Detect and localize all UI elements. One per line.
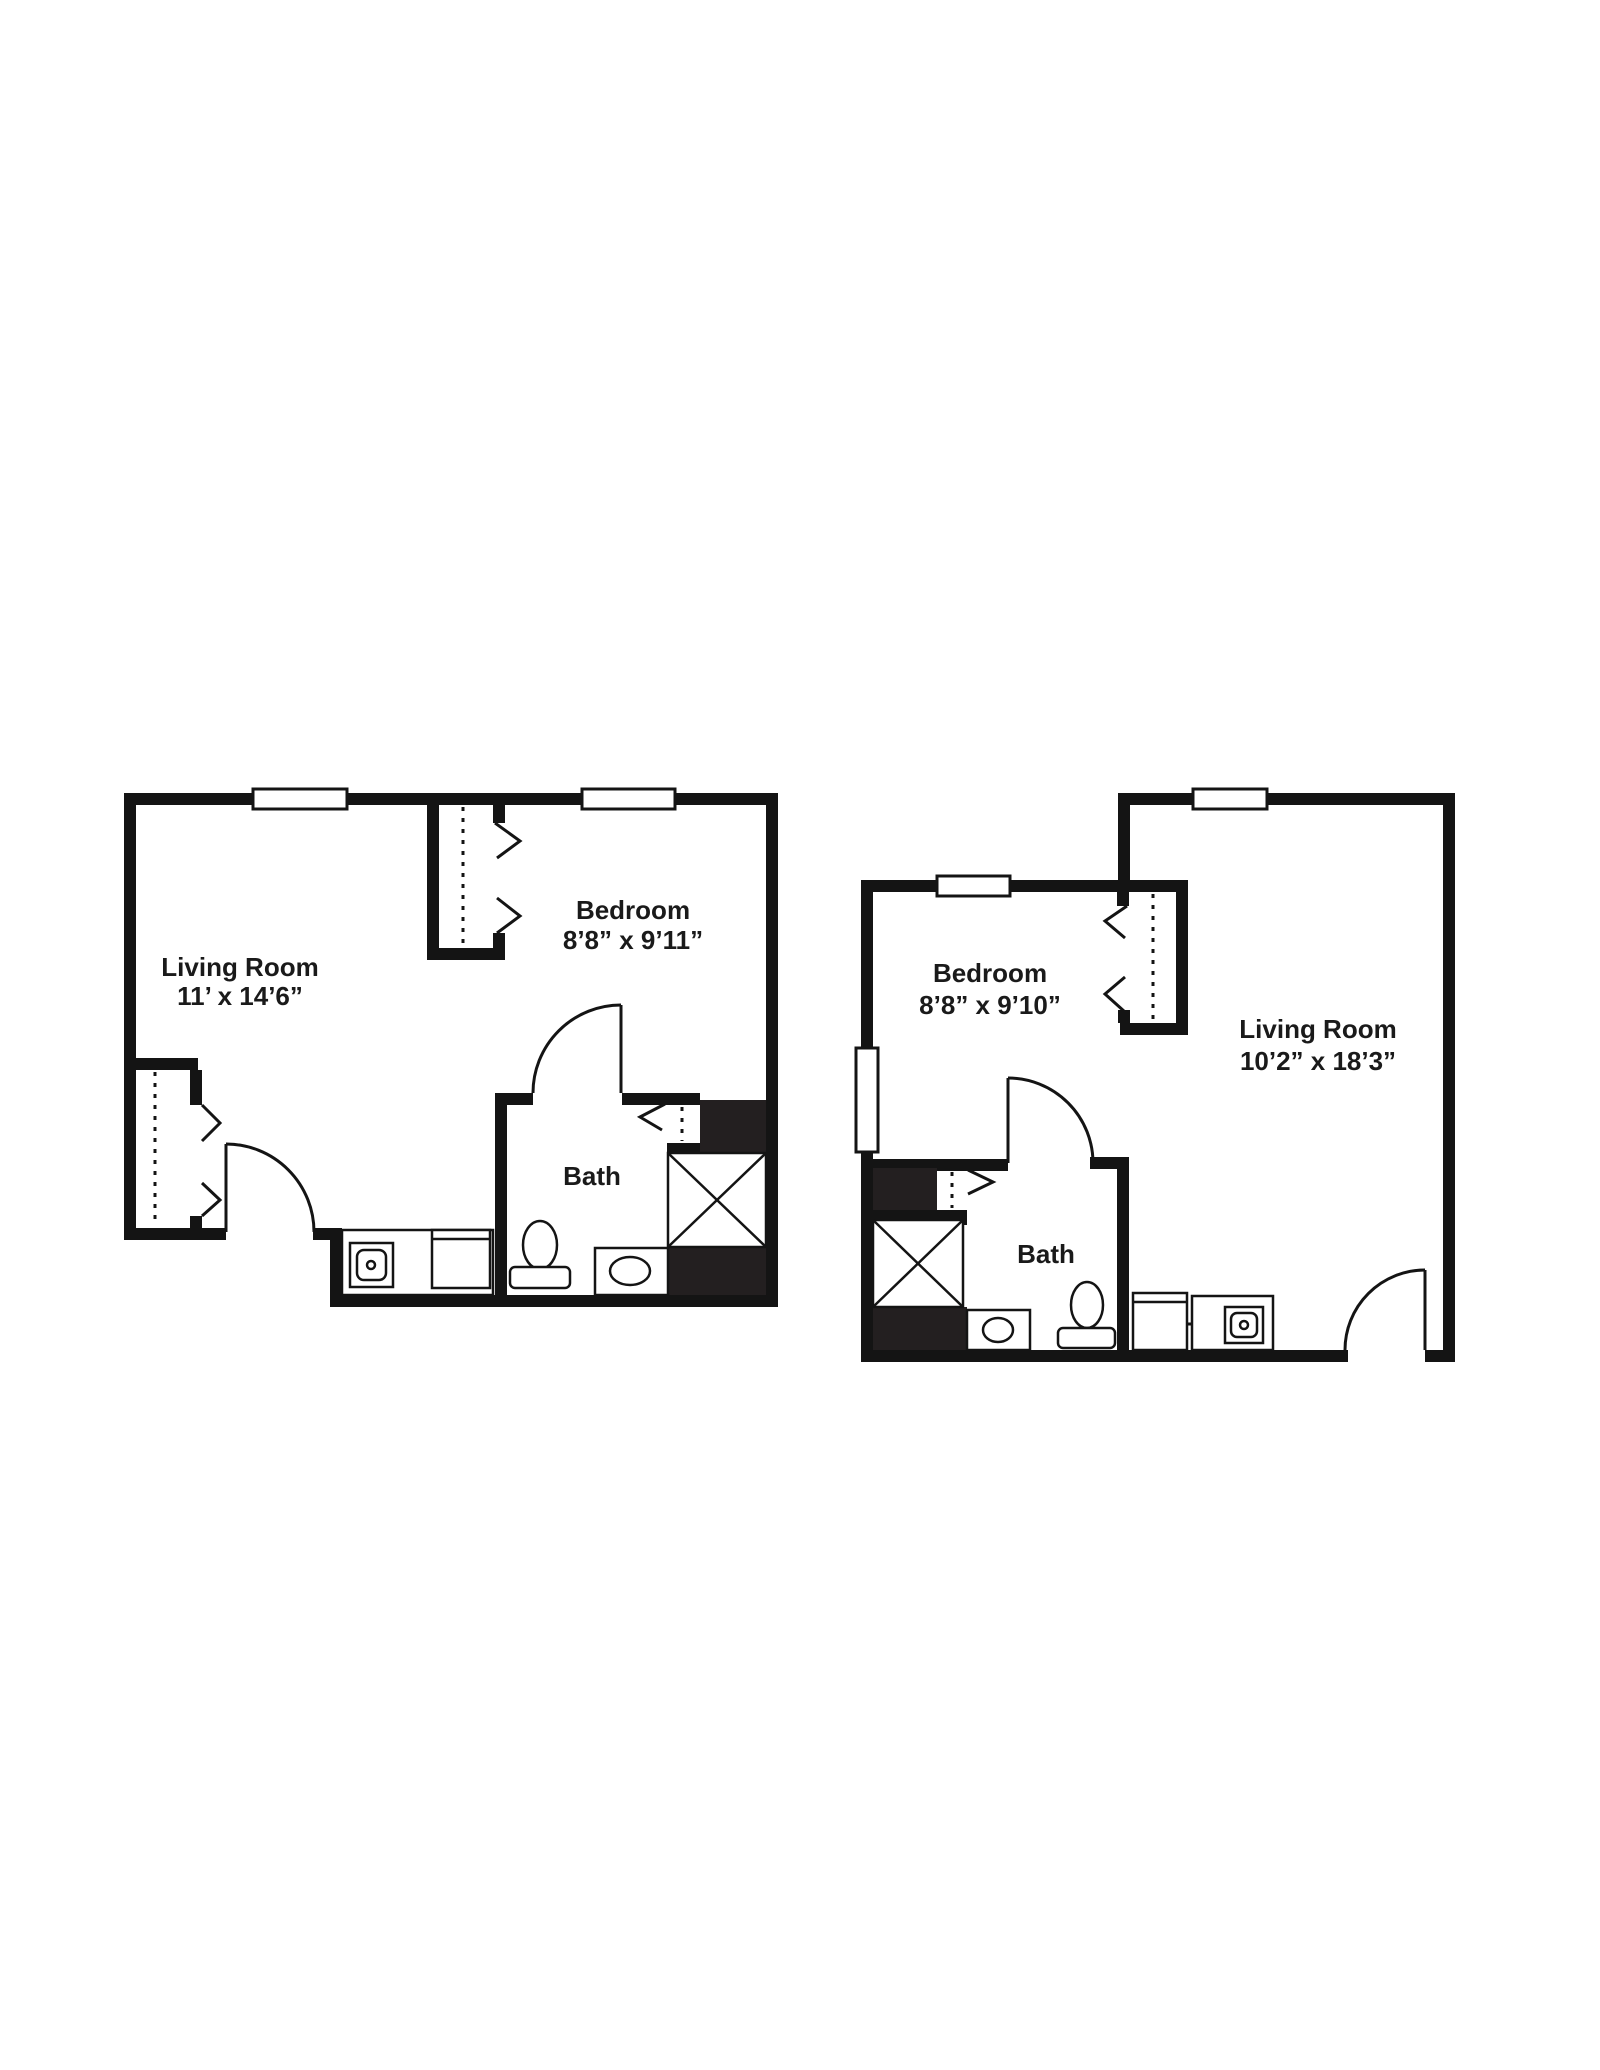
wall-segment [427,793,439,960]
wall-segment [1120,1023,1188,1035]
wall-segment [493,805,505,823]
door-arc [226,1144,314,1232]
bifold-chevron [202,1183,220,1216]
living-room-label: Living Room [161,952,318,982]
wall-segment [495,1093,533,1105]
wall-segment [124,1228,226,1240]
floorplan-page: Living Room 11’ x 14’6” Bedroom 8’8” x 9… [0,0,1600,2070]
wall-segment [622,1093,700,1105]
window [253,789,347,809]
wall-chase [873,1307,967,1350]
bath-label: Bath [563,1161,621,1191]
bifold-chevron [1105,977,1125,1012]
wall-segment [190,1216,202,1228]
bifold-chevron [497,898,520,933]
wall-segment [493,933,505,948]
bedroom-dims: 8’8” x 9’10” [919,990,1061,1020]
wall-segment [427,948,505,960]
window [582,789,675,809]
wall-segment [1443,793,1455,1362]
bifold-chevron [640,1104,665,1130]
wall-segment [330,1295,778,1307]
living-room-dims: 11’ x 14’6” [177,981,303,1011]
bifold-chevron [495,823,520,858]
sink-drain-icon [1240,1321,1248,1329]
door-arc [1008,1078,1093,1163]
wall-segment [190,1070,202,1105]
unit-a-plan: Living Room 11’ x 14’6” Bedroom 8’8” x 9… [124,789,778,1307]
toilet-tank-icon [1058,1328,1115,1348]
wall-segment [136,1058,198,1070]
sink-drain-icon [367,1261,375,1269]
bath-label: Bath [1017,1239,1075,1269]
wall-segment [766,793,778,1307]
wall-segment [1118,793,1130,892]
window [1193,789,1267,809]
toilet-tank-icon [510,1267,570,1288]
wall-segment [861,880,1188,892]
toilet-bowl-icon [523,1221,557,1269]
bedroom-label: Bedroom [576,895,690,925]
wall-segment [124,793,778,805]
wall-segment [861,1350,1348,1362]
door-arc [1345,1270,1425,1350]
vanity-basin-icon [610,1257,650,1285]
bedroom-label: Bedroom [933,958,1047,988]
wall-segment [1425,1350,1455,1362]
wall-segment [495,1093,507,1307]
window [856,1048,878,1152]
wall-segment [1118,793,1455,805]
wall-segment [1176,892,1188,1035]
wall-segment [873,1210,967,1220]
wall-chase [668,1247,766,1295]
wall-segment [1117,892,1129,906]
wall-segment [124,793,136,1240]
bifold-chevron [1105,906,1127,938]
wall-chase [873,1168,937,1210]
door-arc [533,1005,621,1093]
bifold-chevron [968,1170,993,1194]
wall-segment [330,1228,342,1307]
living-room-dims: 10’2” x 18’3” [1240,1046,1396,1076]
unit-b-plan: Bedroom 8’8” x 9’10” Living Room 10’2” x… [856,789,1455,1362]
vanity-basin-icon [983,1318,1013,1342]
bedroom-dims: 8’8” x 9’11” [563,925,703,955]
window [937,876,1010,896]
living-room-label: Living Room [1239,1014,1396,1044]
toilet-bowl-icon [1071,1282,1103,1328]
wall-chase [700,1100,766,1153]
bifold-chevron [202,1105,220,1141]
wall-segment [1117,1157,1129,1350]
floorplans-drawing: Living Room 11’ x 14’6” Bedroom 8’8” x 9… [0,0,1600,2070]
